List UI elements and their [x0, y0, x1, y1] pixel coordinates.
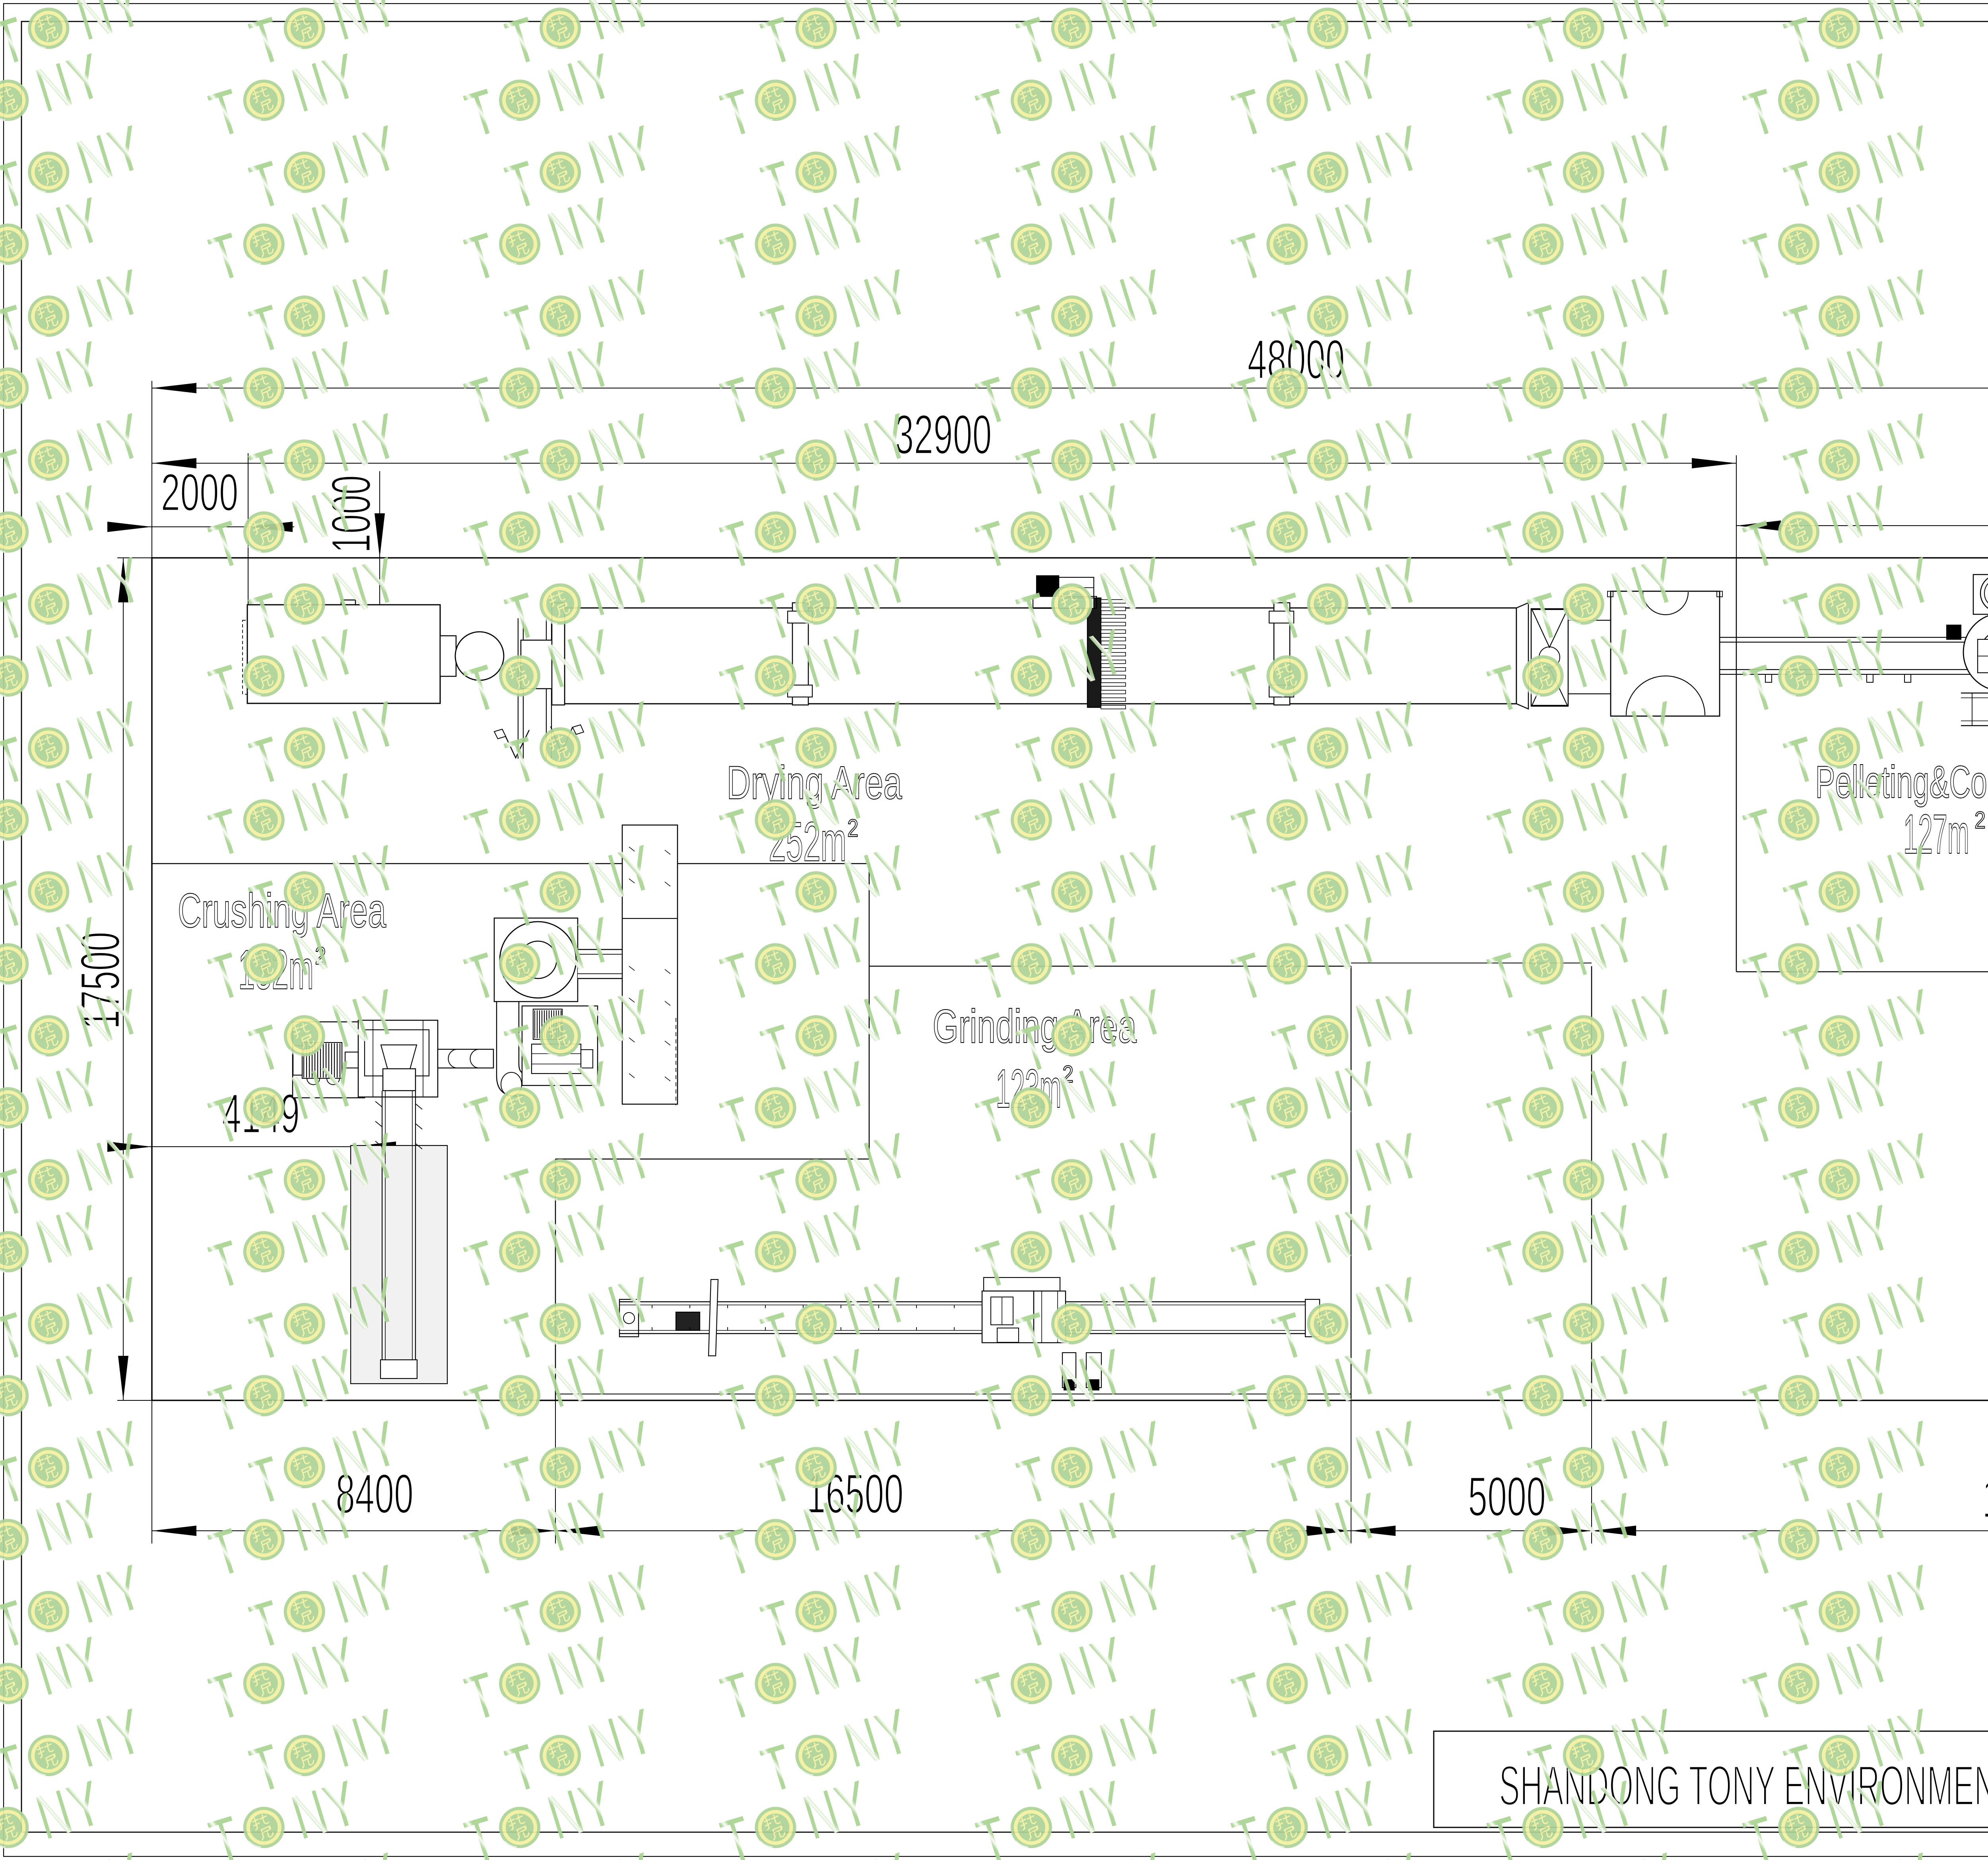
- svg-text:18100: 18100: [1982, 1467, 1988, 1529]
- svg-text:2: 2: [1974, 807, 1986, 833]
